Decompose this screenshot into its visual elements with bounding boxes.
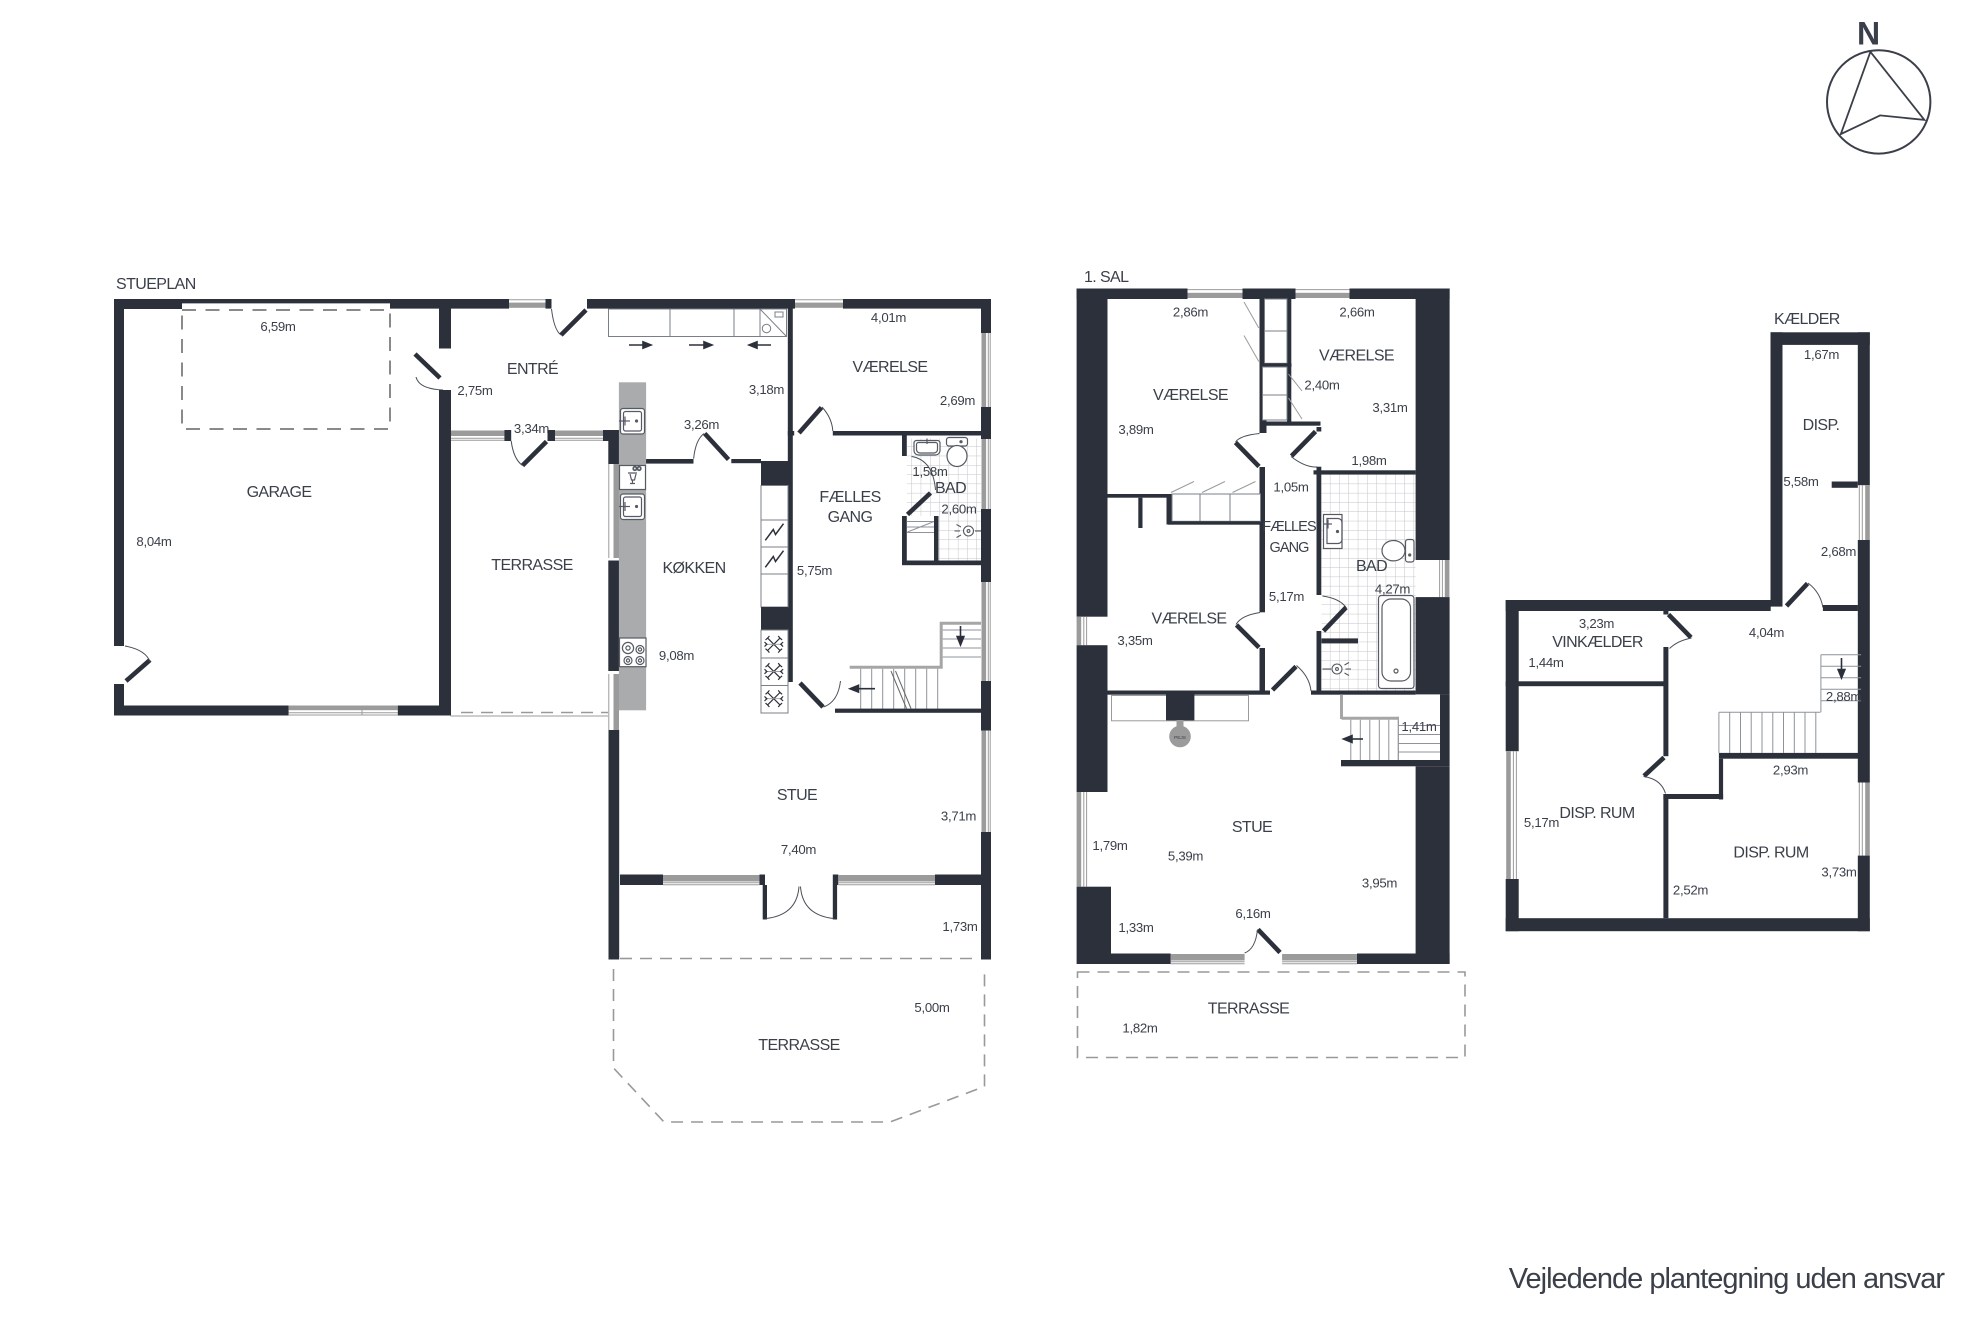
svg-text:1,44m: 1,44m — [1528, 655, 1563, 670]
svg-text:1,98m: 1,98m — [1351, 453, 1386, 468]
svg-text:1. SAL: 1. SAL — [1084, 269, 1129, 286]
svg-text:DISP. RUM: DISP. RUM — [1733, 845, 1808, 862]
svg-text:STUE: STUE — [777, 787, 817, 804]
svg-text:VÆRELSE: VÆRELSE — [1319, 348, 1394, 365]
svg-text:TERRASSE: TERRASSE — [491, 557, 572, 574]
svg-text:4,01m: 4,01m — [871, 310, 906, 325]
svg-text:3,35m: 3,35m — [1117, 633, 1152, 648]
svg-text:N: N — [1857, 16, 1880, 52]
svg-text:1,05m: 1,05m — [1273, 480, 1308, 495]
svg-text:3,71m: 3,71m — [941, 809, 976, 824]
svg-text:3,31m: 3,31m — [1372, 400, 1407, 415]
svg-text:VINKÆLDER: VINKÆLDER — [1552, 634, 1643, 651]
svg-text:5,00m: 5,00m — [914, 1000, 949, 1015]
svg-text:4,27m: 4,27m — [1375, 582, 1410, 597]
svg-text:3,34m: 3,34m — [514, 421, 549, 436]
svg-text:VÆRELSE: VÆRELSE — [1153, 387, 1228, 404]
svg-text:1,73m: 1,73m — [942, 919, 977, 934]
svg-text:TERRASSE: TERRASSE — [758, 1037, 839, 1054]
svg-text:2,86m: 2,86m — [1173, 305, 1208, 320]
svg-text:DISP. RUM: DISP. RUM — [1559, 805, 1634, 822]
svg-text:BAD: BAD — [935, 480, 966, 497]
svg-text:2,68m: 2,68m — [1821, 544, 1856, 559]
svg-text:OO: OO — [633, 467, 642, 473]
svg-text:2,93m: 2,93m — [1773, 763, 1808, 778]
svg-text:2,52m: 2,52m — [1673, 883, 1708, 898]
svg-text:2,60m: 2,60m — [941, 502, 976, 517]
svg-text:1,67m: 1,67m — [1804, 347, 1839, 362]
svg-text:TERRASSE: TERRASSE — [1208, 1001, 1289, 1018]
svg-text:GANG: GANG — [1269, 540, 1309, 556]
svg-text:2,75m: 2,75m — [457, 383, 492, 398]
svg-text:KÆLDER: KÆLDER — [1774, 311, 1840, 328]
svg-text:3,73m: 3,73m — [1821, 865, 1856, 880]
svg-text:9,08m: 9,08m — [659, 648, 694, 663]
svg-text:1,33m: 1,33m — [1118, 920, 1153, 935]
svg-text:FÆLLES: FÆLLES — [819, 489, 880, 506]
svg-text:2,40m: 2,40m — [1304, 378, 1339, 393]
svg-text:6,59m: 6,59m — [260, 319, 295, 334]
svg-text:ENTRÉ: ENTRÉ — [507, 359, 558, 378]
svg-text:3,23m: 3,23m — [1579, 616, 1614, 631]
svg-text:GANG: GANG — [828, 509, 873, 526]
svg-text:PEJS: PEJS — [1174, 735, 1186, 741]
svg-text:7,40m: 7,40m — [781, 842, 816, 857]
svg-text:STUEPLAN: STUEPLAN — [116, 276, 196, 293]
svg-text:2,66m: 2,66m — [1339, 305, 1374, 320]
svg-text:5,17m: 5,17m — [1269, 589, 1304, 604]
svg-text:1,79m: 1,79m — [1092, 838, 1127, 853]
svg-text:2,69m: 2,69m — [940, 393, 975, 408]
svg-text:Vejledende plantegning uden an: Vejledende plantegning uden ansvar — [1509, 1263, 1946, 1295]
svg-text:1,41m: 1,41m — [1401, 719, 1436, 734]
svg-text:FÆLLES: FÆLLES — [1262, 519, 1316, 535]
svg-text:5,58m: 5,58m — [1783, 474, 1818, 489]
svg-text:5,39m: 5,39m — [1168, 849, 1203, 864]
svg-text:3,89m: 3,89m — [1118, 422, 1153, 437]
svg-text:STUE: STUE — [1232, 819, 1272, 836]
svg-text:1,58m: 1,58m — [912, 464, 947, 479]
svg-text:5,75m: 5,75m — [797, 563, 832, 578]
svg-text:8,04m: 8,04m — [136, 534, 171, 549]
svg-text:6,16m: 6,16m — [1235, 906, 1270, 921]
svg-text:KØKKEN: KØKKEN — [662, 560, 725, 577]
svg-text:3,95m: 3,95m — [1362, 876, 1397, 891]
svg-text:3,18m: 3,18m — [749, 382, 784, 397]
svg-text:VÆRELSE: VÆRELSE — [1152, 611, 1227, 628]
svg-text:VÆRELSE: VÆRELSE — [853, 359, 928, 376]
svg-text:3,26m: 3,26m — [684, 417, 719, 432]
svg-text:5,17m: 5,17m — [1524, 815, 1559, 830]
svg-text:BAD: BAD — [1356, 558, 1387, 575]
svg-text:4,04m: 4,04m — [1749, 625, 1784, 640]
svg-text:DISP.: DISP. — [1803, 417, 1840, 434]
svg-text:2,88m: 2,88m — [1826, 689, 1861, 704]
svg-text:GARAGE: GARAGE — [247, 484, 312, 501]
svg-text:1,82m: 1,82m — [1122, 1021, 1157, 1036]
